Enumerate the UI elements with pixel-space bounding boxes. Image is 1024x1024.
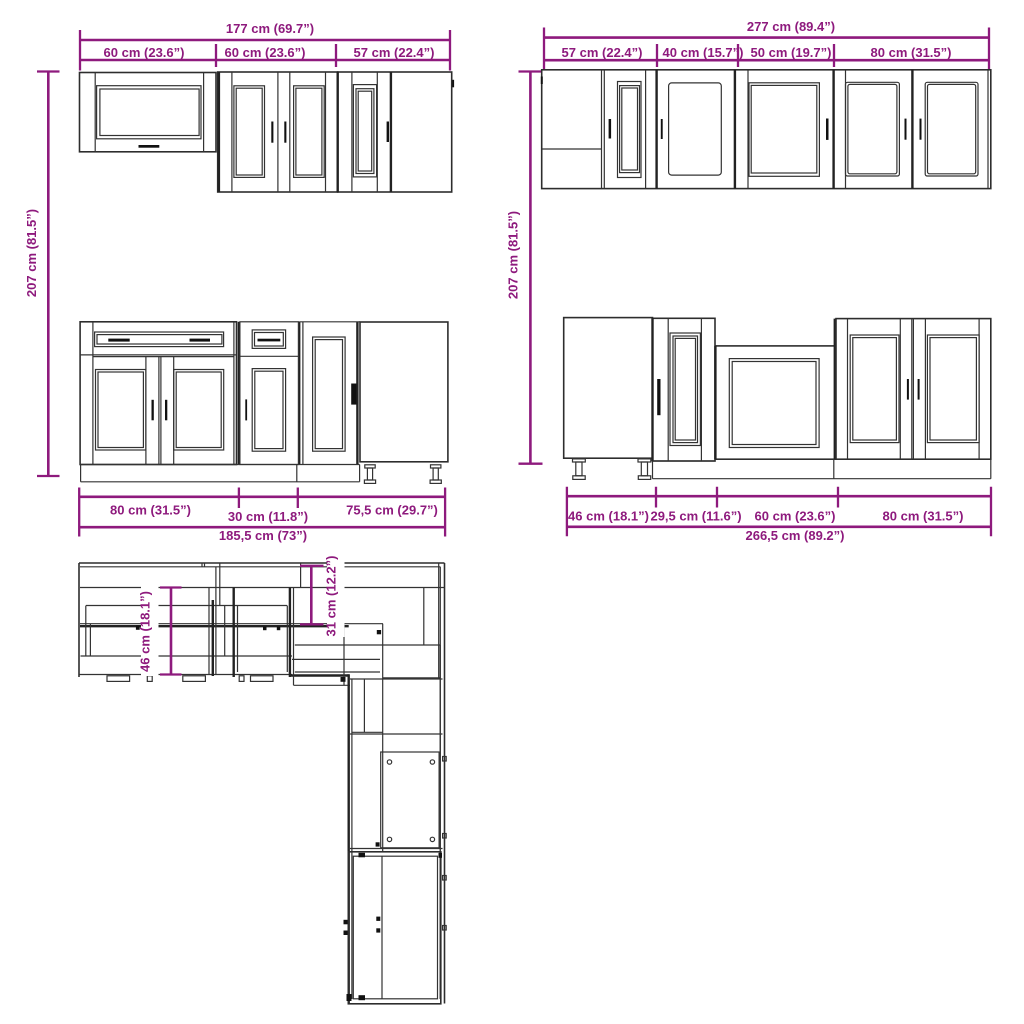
svg-text:80 cm (31.5”): 80 cm (31.5”) xyxy=(883,509,964,524)
svg-text:46 cm (18.1”): 46 cm (18.1”) xyxy=(568,509,649,524)
svg-text:30 cm (11.8”): 30 cm (11.8”) xyxy=(228,509,308,524)
svg-text:207 cm (81.5”): 207 cm (81.5”) xyxy=(24,209,39,297)
svg-text:80 cm (31.5”): 80 cm (31.5”) xyxy=(871,45,952,60)
svg-text:266,5 cm (89.2”): 266,5 cm (89.2”) xyxy=(745,528,844,543)
svg-text:57 cm (22.4”): 57 cm (22.4”) xyxy=(354,45,435,60)
svg-text:60 cm (23.6”): 60 cm (23.6”) xyxy=(104,45,185,60)
svg-text:50 cm (19.7”): 50 cm (19.7”) xyxy=(751,45,832,60)
svg-text:277 cm (89.4”): 277 cm (89.4”) xyxy=(747,19,835,34)
svg-text:177 cm (69.7”): 177 cm (69.7”) xyxy=(226,21,314,36)
svg-text:46 cm (18.1”): 46 cm (18.1”) xyxy=(138,591,153,672)
svg-text:60 cm (23.6”): 60 cm (23.6”) xyxy=(755,509,836,524)
svg-text:185,5 cm (73”): 185,5 cm (73”) xyxy=(219,528,307,543)
svg-text:57 cm (22.4”): 57 cm (22.4”) xyxy=(562,45,643,60)
svg-text:40 cm (15.7”): 40 cm (15.7”) xyxy=(663,45,744,60)
svg-text:29,5 cm (11.6”): 29,5 cm (11.6”) xyxy=(650,509,741,524)
svg-text:80 cm (31.5”): 80 cm (31.5”) xyxy=(110,503,191,518)
svg-text:75,5 cm (29.7”): 75,5 cm (29.7”) xyxy=(346,503,438,518)
svg-text:207 cm (81.5”): 207 cm (81.5”) xyxy=(506,211,521,299)
svg-text:60 cm (23.6”): 60 cm (23.6”) xyxy=(225,45,306,60)
svg-text:31 cm (12.2”): 31 cm (12.2”) xyxy=(324,556,339,637)
